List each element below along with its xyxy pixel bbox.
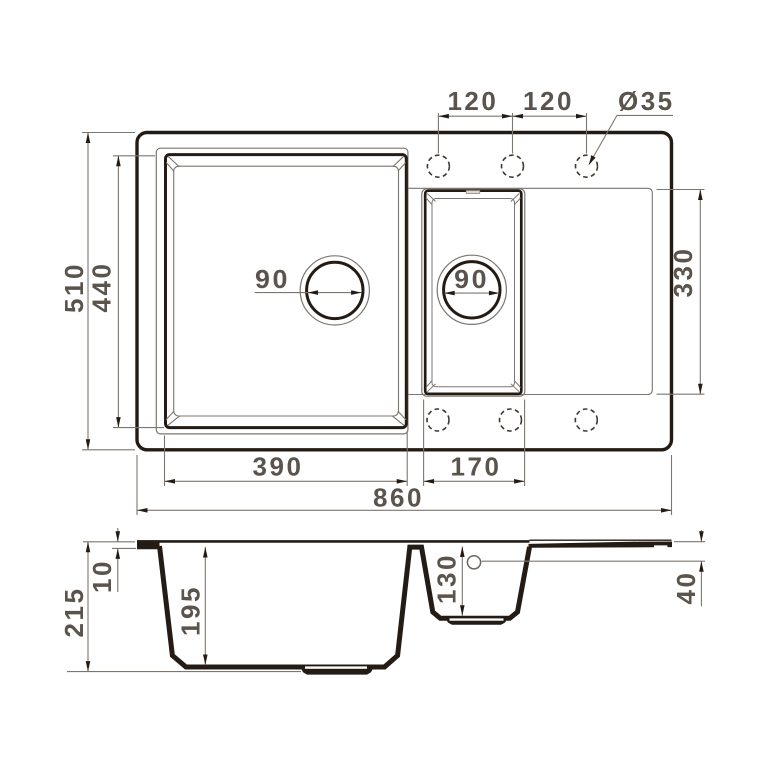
svg-text:390: 390 <box>253 452 304 482</box>
svg-text:120: 120 <box>447 86 498 116</box>
svg-text:215: 215 <box>59 587 89 638</box>
svg-text:90: 90 <box>255 264 290 294</box>
svg-text:440: 440 <box>87 262 117 313</box>
svg-text:195: 195 <box>176 585 206 636</box>
svg-text:170: 170 <box>451 452 502 482</box>
svg-text:510: 510 <box>59 262 89 313</box>
svg-text:860: 860 <box>373 482 424 512</box>
svg-text:130: 130 <box>432 553 462 604</box>
svg-text:120: 120 <box>523 86 574 116</box>
svg-text:330: 330 <box>668 247 698 298</box>
svg-text:90: 90 <box>454 264 489 294</box>
svg-text:10: 10 <box>87 559 117 593</box>
svg-text:Ø35: Ø35 <box>618 86 675 116</box>
svg-text:40: 40 <box>671 571 701 605</box>
